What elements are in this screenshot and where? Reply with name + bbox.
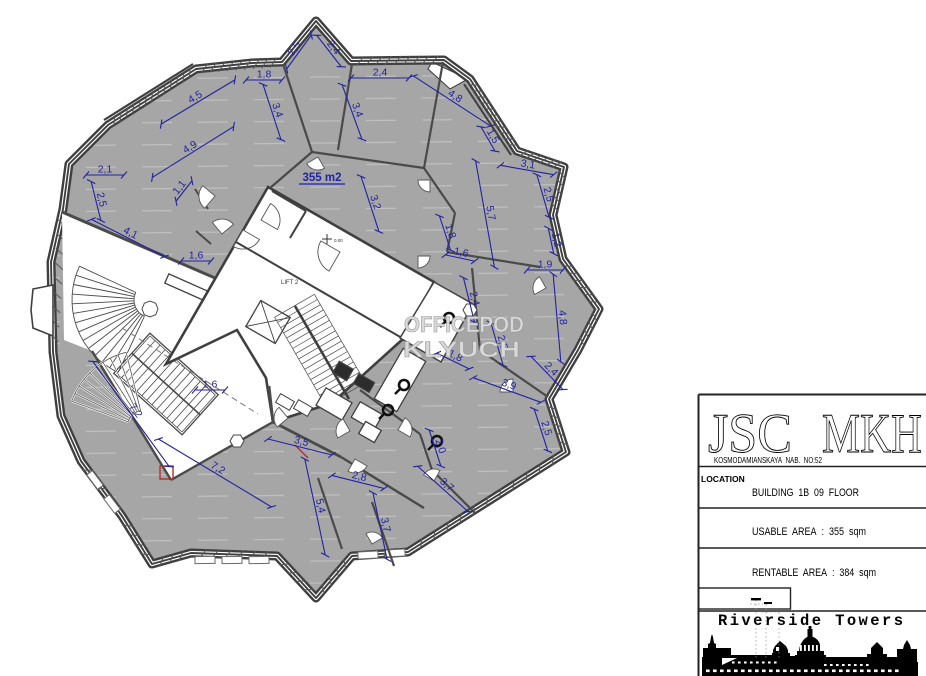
svg-text:BUILDING 1B 09 FLOOR: BUILDING 1B 09 FLOOR (752, 487, 859, 499)
svg-text:2,1: 2,1 (98, 164, 113, 176)
svg-text:OFFICEPOD: OFFICEPOD (404, 312, 524, 337)
svg-text:5,7: 5,7 (483, 205, 497, 222)
svg-text:LOCATION: LOCATION (701, 474, 745, 484)
svg-text:1,6: 1,6 (189, 250, 204, 262)
svg-text:4,8: 4,8 (556, 310, 569, 326)
svg-text:2,4: 2,4 (373, 67, 388, 79)
svg-text:355 m2: 355 m2 (302, 172, 341, 184)
svg-text:3,1: 3,1 (520, 157, 537, 171)
svg-text:1,8: 1,8 (257, 69, 272, 81)
svg-text:KLYUCH: KLYUCH (403, 337, 520, 362)
svg-text:LIFT 2: LIFT 2 (281, 280, 299, 286)
svg-text:0.00: 0.00 (334, 238, 343, 243)
svg-text:KOSMODAMIANSKAYA NAB. NO:52: KOSMODAMIANSKAYA NAB. NO:52 (714, 455, 822, 465)
svg-text:1,6: 1,6 (203, 379, 218, 391)
svg-text:RENTABLE AREA : 384 sqm: RENTABLE AREA : 384 sqm (752, 567, 876, 579)
svg-text:MKH: MKH (822, 403, 922, 465)
svg-text:1,9: 1,9 (538, 259, 553, 271)
svg-text:USABLE AREA : 355 sqm: USABLE AREA : 355 sqm (752, 526, 866, 538)
